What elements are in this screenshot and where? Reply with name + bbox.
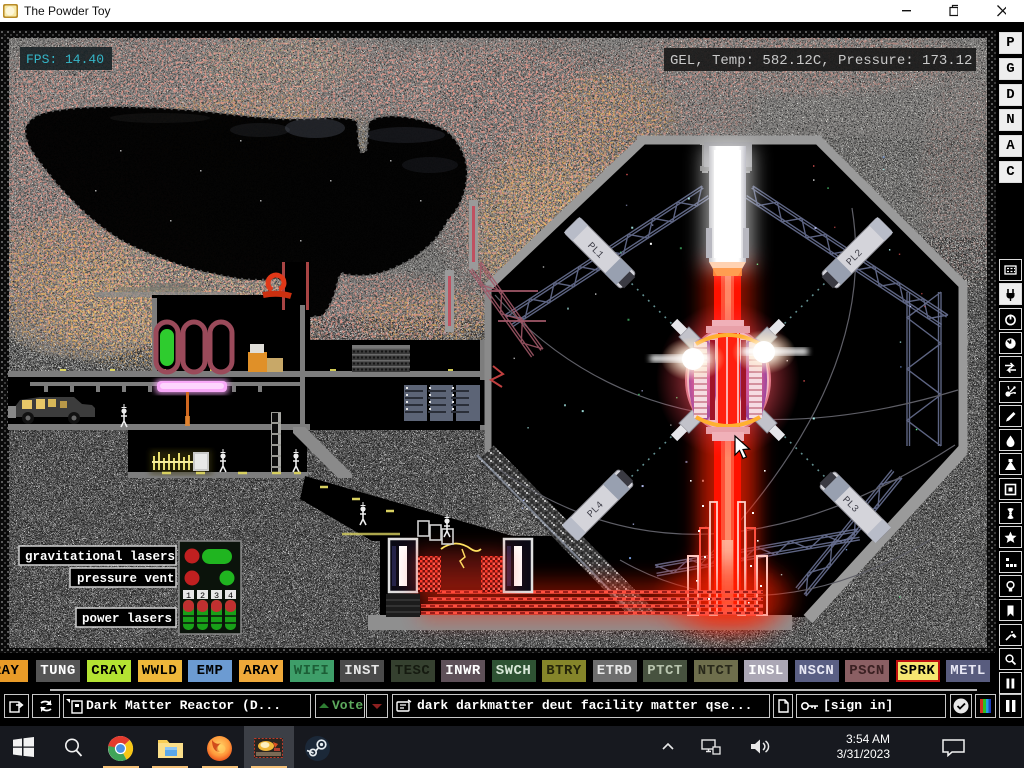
svg-text:FPS: 14.40: FPS: 14.40 [26,52,104,67]
svg-text:4: 4 [228,591,233,601]
svg-text:power lasers: power lasers [82,612,172,626]
svg-text:2: 2 [200,591,205,601]
svg-text:3: 3 [214,591,219,601]
svg-text:1: 1 [186,591,191,601]
svg-text:gravitational lasers: gravitational lasers [25,550,175,564]
svg-text:pressure vent: pressure vent [77,572,175,586]
svg-text:GEL, Temp: 582.12C, Pressure:: GEL, Temp: 582.12C, Pressure: 173.12 [670,53,972,69]
